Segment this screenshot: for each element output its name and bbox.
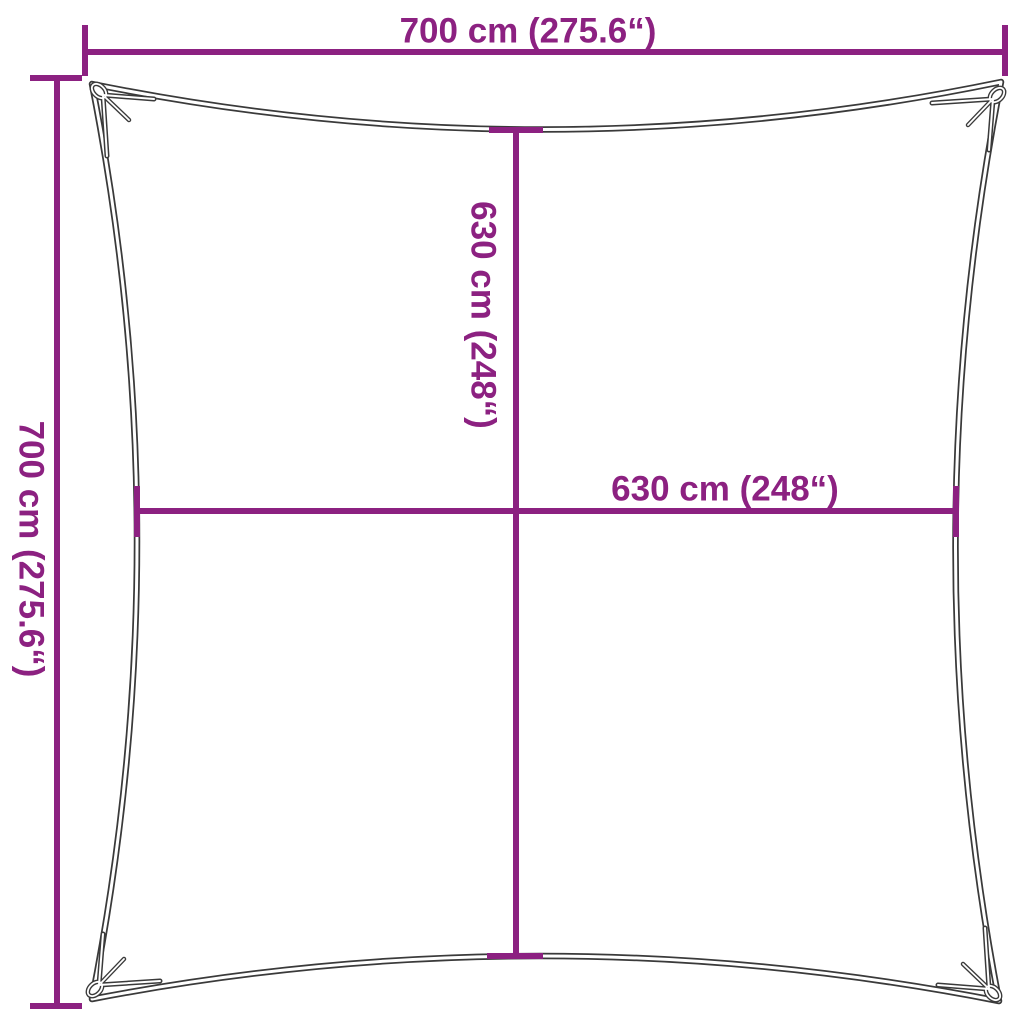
top-width-label: 700 cm (275.6“)	[400, 14, 657, 49]
shade-sail-dimension-drawing	[0, 0, 1024, 1024]
center-width-label: 630 cm (248“)	[611, 472, 839, 507]
diagram-canvas: 700 cm (275.6“) 700 cm (275.6“) 630 cm (…	[0, 0, 1024, 1024]
left-height-label: 700 cm (275.6“)	[14, 421, 49, 678]
sail-outline	[92, 82, 1001, 1001]
center-height-label: 630 cm (248“)	[466, 201, 501, 429]
